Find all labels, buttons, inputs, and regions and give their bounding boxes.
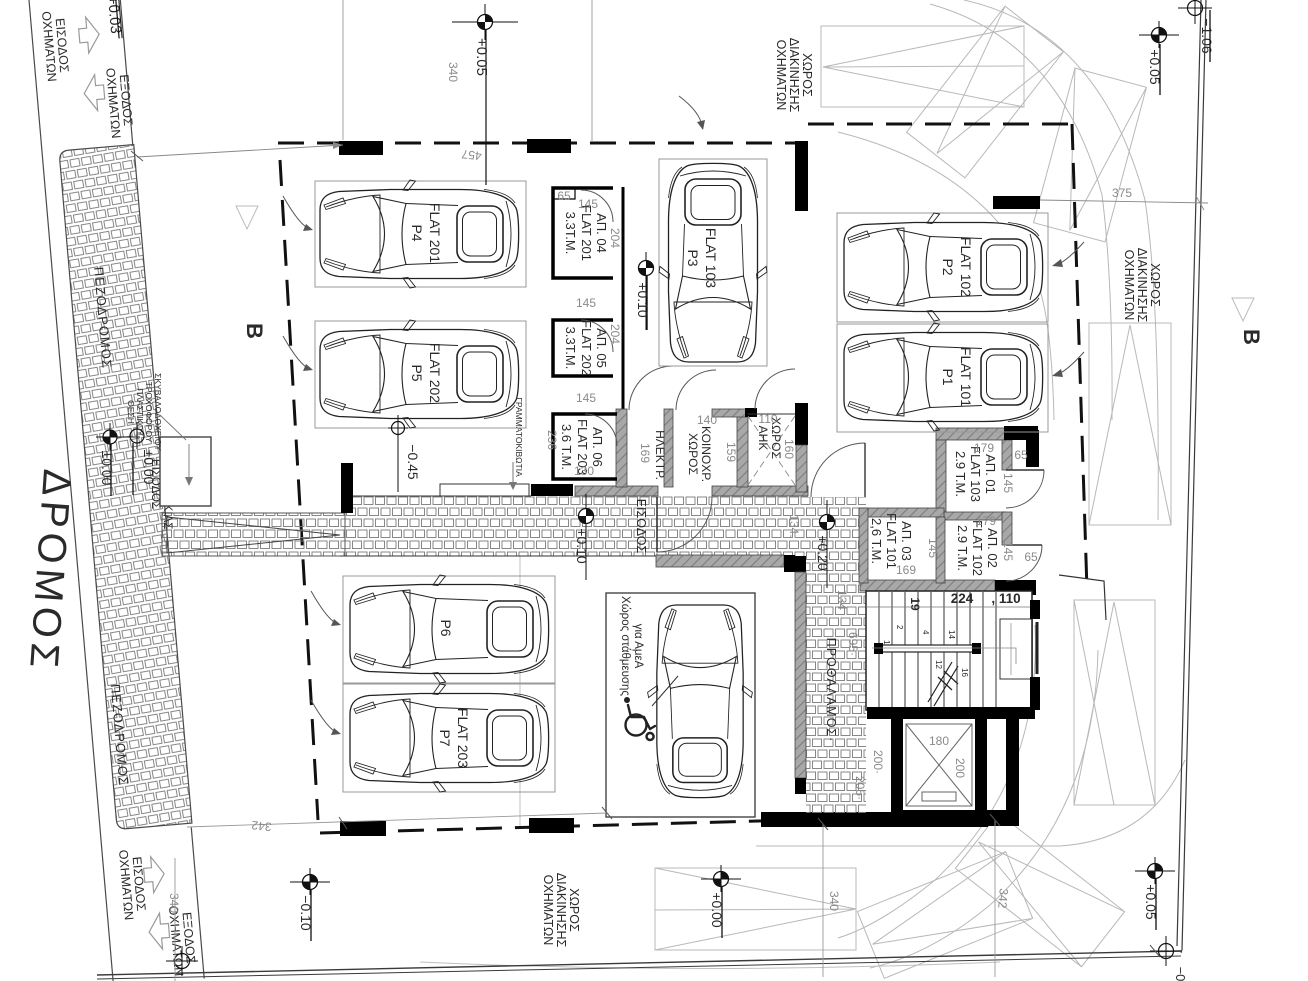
svg-text:ΔΙΑΚΙΝΗΣΗΣ: ΔΙΑΚΙΝΗΣΗΣ (1135, 248, 1149, 323)
svg-text:, 110: , 110 (991, 591, 1020, 606)
svg-text:ΑΠ. 06: ΑΠ. 06 (590, 427, 605, 467)
svg-text:FLAT 101: FLAT 101 (958, 347, 974, 407)
svg-text:για ΑμεΑ: για ΑμεΑ (632, 624, 644, 669)
svg-text:159: 159 (724, 442, 738, 462)
svg-text:342: 342 (251, 818, 273, 834)
svg-text:340: 340 (446, 62, 460, 82)
svg-text:ΟΧΗΜΑΤΩΝ: ΟΧΗΜΑΤΩΝ (774, 40, 788, 111)
svg-text:P7: P7 (437, 729, 453, 746)
svg-text:−0.45: −0.45 (405, 444, 421, 480)
svg-text:224: 224 (951, 591, 974, 606)
svg-text:P5: P5 (409, 364, 425, 381)
svg-text:169: 169 (896, 563, 916, 577)
svg-text:236: 236 (545, 430, 559, 450)
svg-text:16: 16 (960, 668, 969, 677)
svg-text:14: 14 (947, 630, 956, 639)
svg-text:ΑΠ. 05: ΑΠ. 05 (594, 328, 609, 368)
svg-text:FLAT 102: FLAT 102 (958, 237, 974, 297)
svg-text:ΑΠ. 04: ΑΠ. 04 (594, 213, 609, 253)
svg-text:ΑΠ. 02: ΑΠ. 02 (985, 528, 1000, 568)
svg-text:ΕΙΣΟΔΟΣ: ΕΙΣΟΔΟΣ (634, 499, 648, 554)
svg-text:180: 180 (929, 734, 949, 748)
svg-text:160: 160 (782, 439, 796, 459)
svg-text:ΧΩΡΟΣ: ΧΩΡΟΣ (686, 433, 700, 475)
svg-text:−0: −0 (1173, 967, 1188, 981)
svg-text:ΗΛΕΚΤΡ.: ΗΛΕΚΤΡ. (653, 430, 667, 480)
svg-text:65: 65 (1014, 448, 1028, 462)
svg-text:FLAT 202: FLAT 202 (579, 320, 594, 376)
svg-text:FLAT 102: FLAT 102 (970, 520, 985, 576)
svg-text:P4: P4 (409, 224, 425, 241)
svg-text:ΑΠ. 03: ΑΠ. 03 (899, 521, 914, 561)
svg-text:340: 340 (827, 891, 841, 911)
svg-text:169: 169 (638, 443, 652, 463)
svg-text:2: 2 (895, 625, 904, 630)
svg-text:P6: P6 (438, 619, 454, 636)
svg-text:134.: 134. (787, 514, 801, 537)
svg-text:65: 65 (1024, 550, 1038, 564)
svg-text:ΧΩΡΟΣ: ΧΩΡΟΣ (567, 888, 581, 932)
svg-text:134: 134 (835, 590, 849, 610)
svg-text:P2: P2 (940, 258, 956, 275)
svg-text:ΘΕΣΗ: ΘΕΣΗ (126, 400, 136, 424)
svg-text:±0.00: ±0.00 (99, 451, 115, 486)
svg-text:ΚΟΙΝΟΧΡ.: ΚΟΙΝΟΧΡ. (699, 426, 713, 482)
svg-text:−1.06: −1.06 (1199, 18, 1215, 54)
svg-text:ΣΚΥΒΑΛΟΔΟΧΕΙΟΥ: ΣΚΥΒΑΛΟΔΟΧΕΙΟΥ (153, 373, 163, 451)
svg-text:+0.10: +0.10 (574, 528, 590, 564)
svg-text:12: 12 (934, 660, 943, 669)
svg-text:19: 19 (908, 597, 922, 611)
svg-text:3.3Τ.Μ.: 3.3Τ.Μ. (563, 212, 578, 255)
svg-text:204: 204 (608, 324, 622, 344)
svg-text:ΑΗΚ: ΑΗΚ (756, 426, 770, 451)
svg-text:179: 179 (976, 514, 996, 528)
svg-text:204: 204 (608, 228, 622, 248)
svg-text:ΓΡΑΜΜΑΤΟΚΙΒΩΤΙΑ: ΓΡΑΜΜΑΤΟΚΙΒΩΤΙΑ (514, 397, 524, 477)
svg-text:340: 340 (167, 893, 181, 913)
svg-text:2.9 Τ.Μ.: 2.9 Τ.Μ. (953, 451, 968, 497)
svg-text:2.9 Τ.Μ.: 2.9 Τ.Μ. (955, 525, 970, 571)
svg-text:4: 4 (921, 630, 930, 635)
svg-text:FLAT 201: FLAT 201 (427, 203, 443, 263)
svg-text:342: 342 (995, 888, 1011, 909)
svg-text:1: 1 (882, 640, 891, 645)
svg-text:145: 145 (1001, 473, 1015, 493)
svg-text:145: 145 (1001, 541, 1015, 561)
svg-text:130: 130 (574, 464, 594, 478)
svg-text:179: 179 (974, 441, 994, 455)
svg-text:110: 110 (758, 412, 777, 426)
svg-text:+0.10: +0.10 (635, 282, 651, 318)
svg-text:ΔΙΑΚΙΝΗΣΗΣ: ΔΙΑΚΙΝΗΣΗΣ (787, 38, 801, 113)
svg-text:ΧΩΡΟΣ: ΧΩΡΟΣ (1148, 263, 1162, 307)
svg-text:ΠΛΑΣΤΙΚΟΥ: ΠΛΑΣΤΙΚΟΥ (135, 388, 145, 436)
svg-text:P3: P3 (685, 249, 701, 266)
svg-text:65: 65 (557, 189, 571, 203)
svg-text:695·: 695· (846, 632, 860, 656)
svg-text:145: 145 (926, 538, 940, 558)
svg-text:ΟΧΗΜΑΤΩΝ: ΟΧΗΜΑΤΩΝ (541, 875, 555, 946)
svg-text:FLAT 101: FLAT 101 (884, 513, 899, 569)
svg-text:375: 375 (1112, 186, 1132, 200)
svg-text:2,6 Τ.Μ.: 2,6 Τ.Μ. (869, 518, 884, 564)
svg-text:B: B (1239, 329, 1264, 345)
svg-text:FLAT 201: FLAT 201 (579, 205, 594, 261)
svg-text:ΤΡΟΧΟΦΟΡΟΥ: ΤΡΟΧΟΦΟΡΟΥ (144, 382, 154, 443)
svg-text:ΟΧΗΜΑΤΩΝ: ΟΧΗΜΑΤΩΝ (1122, 250, 1136, 321)
svg-text:145: 145 (578, 197, 598, 211)
svg-text:205·: 205· (853, 776, 867, 800)
svg-text:140: 140 (697, 413, 717, 427)
svg-text:200: 200 (953, 758, 967, 778)
svg-text:3.3Τ.Μ.: 3.3Τ.Μ. (563, 327, 578, 370)
svg-text:FLAT 203: FLAT 203 (455, 708, 471, 768)
svg-text:3.6 Τ.Μ.: 3.6 Τ.Μ. (559, 424, 574, 470)
svg-text:FLAT 103: FLAT 103 (703, 228, 719, 288)
svg-text:ΧΩΡΟΣ: ΧΩΡΟΣ (800, 53, 814, 97)
svg-text:457: 457 (461, 147, 483, 163)
svg-text:Χώρος στάθμευσης: Χώρος στάθμευσης (619, 596, 631, 696)
svg-text:145: 145 (576, 296, 596, 310)
svg-text:200·: 200· (871, 750, 885, 774)
svg-text:+0.05: +0.05 (473, 38, 490, 76)
svg-text:ΔΙΑΚΙΝΗΣΗΣ: ΔΙΑΚΙΝΗΣΗΣ (554, 873, 568, 948)
svg-text:B: B (242, 323, 267, 339)
svg-text:ΑΠ. 01: ΑΠ. 01 (983, 454, 998, 494)
svg-text:P1: P1 (940, 368, 956, 385)
svg-text:ΕΙΣΟΔΟΣ: ΕΙΣΟΔΟΣ (149, 459, 161, 509)
svg-text:ΠΡΟΘΑΛΑΜΟΣ·: ΠΡΟΘΑΛΑΜΟΣ· (824, 638, 838, 743)
svg-text:FLAT 202: FLAT 202 (427, 343, 443, 403)
svg-text:+0.20: +0.20 (815, 535, 831, 571)
svg-text:145: 145 (576, 391, 596, 405)
